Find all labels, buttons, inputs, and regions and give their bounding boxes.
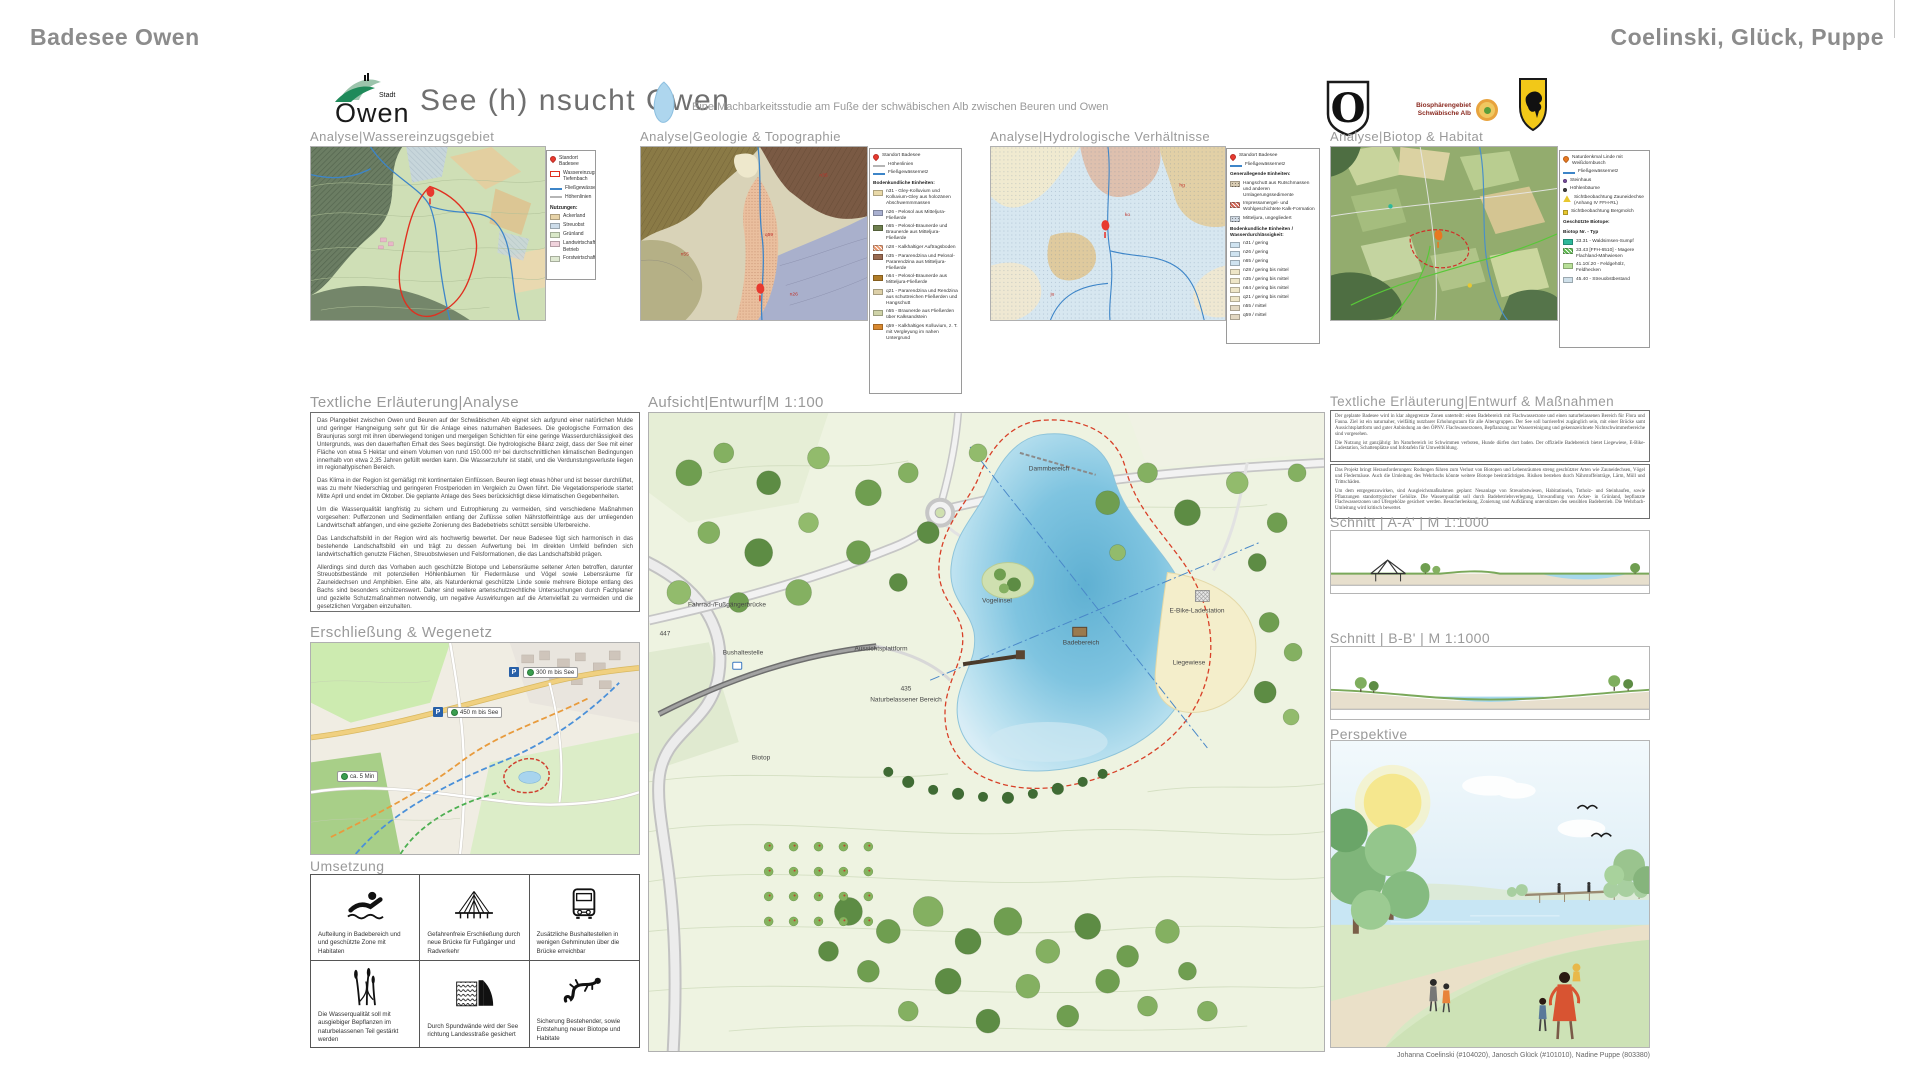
legend-swatch <box>873 254 883 260</box>
legend-swatch <box>1230 260 1240 266</box>
legend-item: Generallegende Einheiten: <box>1230 172 1316 178</box>
legend-item: q59 / mittel <box>1230 313 1316 320</box>
legend-swatch <box>1230 296 1240 302</box>
chip-label: 450 m bis See <box>460 710 498 716</box>
legend-label: Höhenlinien <box>888 162 958 168</box>
authors: Coelinski, Glück, Puppe <box>1610 24 1884 51</box>
subtitle: Eine Machbarkeitsstudie am Fuße der schw… <box>692 101 1292 113</box>
legend-item: 41.10/.20 - Feldgehölz, Feldhecken <box>1563 262 1646 274</box>
plan-label-naturbereich: Naturbelassener Bereich <box>870 697 942 704</box>
heading-textliche-erlaeuterung-analyse: Textliche Erläuterung|Analyse <box>310 394 519 411</box>
plan-label-aussichtsplattform: Aussichtsplattform <box>854 646 907 653</box>
biosphere-logo: Biosphärengebiet Schwäbische Alb <box>1398 96 1498 124</box>
main-title: See (h) nsucht Owen <box>420 84 730 118</box>
legend-label: n65 / gering <box>1243 259 1316 265</box>
legend-label: Sichtbeobachtung Bergmolch <box>1571 209 1646 215</box>
plan-label-dammbereich: Dammbereich <box>1029 466 1069 473</box>
legend-item: Naturdenkmal Linde mit Weißdornbusch <box>1563 155 1646 167</box>
legend-item: Ackerland <box>550 213 592 220</box>
plan-label-badebereich: Badebereich <box>1063 640 1100 647</box>
legend-swatch <box>873 289 883 295</box>
legend-label: Hangschutt aus Rutschmassen und anderen … <box>1243 181 1316 199</box>
legend-label: q59 / mittel <box>1243 313 1316 319</box>
poster: Badesee Owen Coelinski, Glück, Puppe Sta… <box>0 0 1920 1080</box>
map-biotop-habitat <box>1330 146 1558 321</box>
map-hydrologische-verhaeltnisse: kojuhg <box>990 146 1226 321</box>
chip-label: 300 m bis See <box>536 670 574 676</box>
legend-item: Bodenkundliche Einheiten: <box>873 181 958 187</box>
legend-swatch <box>550 232 560 238</box>
legend-swatch <box>873 324 883 330</box>
legend-item: Bodenkundliche Einheiten / Wasserdurchlä… <box>1230 227 1316 239</box>
legend-item: n64 - Pelosol-Braunerde aus Mitteljura-F… <box>873 274 958 286</box>
legend-item: 33.43 [FFH-6510] - Magere Flachland-Mähw… <box>1563 248 1646 260</box>
site-plan: Dammbereich Vogelinsel Badebereich E-Bik… <box>648 412 1325 1052</box>
chip-label: ca. 5 Min <box>350 774 374 780</box>
legend-item: n55 / mittel <box>1230 304 1316 311</box>
legend-label: Bodenkundliche Einheiten: <box>873 181 958 187</box>
legend-label: 33.31 - Waldsimsen-Sumpf <box>1576 239 1646 245</box>
legend-geologie: Standort Badesee Höhenlinien Fließgewäss… <box>869 148 962 394</box>
legend-swatch <box>1230 202 1240 208</box>
legend-label: n31 / gering <box>1243 241 1316 247</box>
entwurf-paragraph: Die Nutzung ist ganzjährig: Im Naturbere… <box>1335 441 1645 453</box>
umsetzung-cell: Die Wasserqualität soll mit ausgiebiger … <box>311 961 420 1047</box>
legend-item: Landwirtschaftlicher Betrieb <box>550 240 592 253</box>
legend-label: Fließgewässernetz <box>888 170 958 176</box>
umsetzung-grid: Aufteilung in Badebereich und und geschü… <box>310 874 640 1048</box>
legend-label: Bodenkundliche Einheiten / Wasserdurchlä… <box>1230 227 1316 239</box>
heading-textliche-erlaeuterung-entwurf: Textliche Erläuterung|Entwurf & Maßnahme… <box>1330 394 1614 409</box>
legend-item: n65 - Pelosol-Braunerde und Braunerde au… <box>873 224 958 242</box>
legend-swatch <box>550 241 560 247</box>
distance-chip: ca. 5 Min <box>337 771 378 782</box>
distance-chip: 300 m bis See <box>523 667 578 678</box>
legend-item: q21 / gering bis mittel <box>1230 295 1316 302</box>
svg-text:ko: ko <box>1125 212 1130 218</box>
legend-swatch <box>550 188 562 190</box>
legend-item: n28 - Kalkhaltiger Auftragsboden <box>873 245 958 252</box>
legend-label: 45.40 - Streuobstbestand <box>1576 277 1646 283</box>
entwurf-paragraph: Das Projekt bringt Herausforderungen: Ro… <box>1335 468 1645 486</box>
analyse-paragraph: Das Plangebiet zwischen Owen und Beuren … <box>317 418 633 473</box>
legend-swatch <box>873 275 883 281</box>
walk-dot-icon <box>527 669 534 676</box>
salamander-icon <box>530 961 639 1014</box>
legend-swatch <box>1230 181 1240 187</box>
legend-label: n65 - Pelosol-Braunerde und Braunerde au… <box>886 224 958 242</box>
legend-swatch <box>550 256 560 262</box>
legend-label: Höhlenbäume <box>1570 186 1646 192</box>
legend-item: n26 / gering <box>1230 250 1316 257</box>
legend-item: Fließgewässer <box>550 185 592 191</box>
umsetzung-caption: Die Wasserqualität soll mit ausgiebiger … <box>311 1007 419 1047</box>
legend-item: Hangschutt aus Rutschmassen und anderen … <box>1230 181 1316 199</box>
legend-label: Grünland <box>563 231 592 237</box>
legend-swatch <box>873 245 883 251</box>
legend-item: Mitteljura, ungegliedert <box>1230 216 1316 223</box>
legend-label: 33.43 [FFH-6510] - Magere Flachland-Mähw… <box>1576 248 1646 260</box>
legend-label: Geschützte Biotope: <box>1563 220 1646 226</box>
legend-item: Steinhaus <box>1563 178 1646 184</box>
legend-label: Standort Badesee <box>882 153 958 159</box>
plan-label-vogelinsel: Vogelinsel <box>982 598 1012 605</box>
legend-swatch <box>1230 165 1242 167</box>
legend-biotop: Naturdenkmal Linde mit Weißdornbusch Fli… <box>1559 150 1650 348</box>
legend-item: 45.40 - Streuobstbestand <box>1563 277 1646 284</box>
reeds-icon <box>311 961 419 1007</box>
legend-item: Höhlenbäume <box>1563 186 1646 192</box>
legend-label: Nutzungen: <box>550 205 592 211</box>
plan-label-bruecke: Fahrrad-/Fußgängerbrücke <box>688 602 766 609</box>
legend-swatch <box>1563 239 1573 245</box>
legend-swatch <box>550 171 560 177</box>
legend-swatch <box>873 310 883 316</box>
legend-label: n35 / gering bis mittel <box>1243 277 1316 283</box>
svg-text:n35: n35 <box>819 173 828 179</box>
legend-label: Generallegende Einheiten: <box>1230 172 1316 178</box>
legend-swatch <box>1563 179 1567 183</box>
svg-text:hg: hg <box>1179 183 1185 189</box>
legend-item: n64 / gering bis mittel <box>1230 286 1316 293</box>
legend-label: n55 / mittel <box>1243 304 1316 310</box>
umsetzung-caption: Zusätzliche Bushaltestellen in wenigen G… <box>530 927 639 960</box>
legend-swatch <box>1230 269 1240 275</box>
legend-item: n31 / gering <box>1230 241 1316 248</box>
legend-label: Forstwirtschaft <box>563 255 596 261</box>
svg-text:n26: n26 <box>790 291 799 297</box>
legend-swatch <box>1230 242 1240 248</box>
legend-label: n28 - Kalkhaltiger Auftragsboden <box>886 245 958 251</box>
legend-swatch <box>1230 287 1240 293</box>
schnitt-aa-drawing <box>1330 530 1650 594</box>
biosphere-line2: Schwäbische Alb <box>1398 110 1471 118</box>
legend-swatch <box>1563 263 1573 269</box>
perspektive-drawing <box>1330 740 1650 1048</box>
legend-label: Ackerland <box>563 213 592 219</box>
legend-label: Fließgewässernetz <box>1245 162 1316 168</box>
umsetzung-cell: Durch Spundwände wird der See richtung L… <box>420 961 529 1047</box>
heading-analyse-hydrologie: Analyse|Hydrologische Verhältnisse <box>990 129 1210 144</box>
credits: Johanna Coelinski (#104020), Janosch Glü… <box>1330 1052 1650 1059</box>
map-wassereinzugsgebiet <box>310 146 546 321</box>
analyse-paragraph: Das Klima in der Region ist gemäßigt mit… <box>317 478 633 502</box>
legend-item: Grünland <box>550 231 592 238</box>
heading-analyse-biotop: Analyse|Biotop & Habitat <box>1330 129 1483 144</box>
beuren-crest-shield <box>1518 76 1548 132</box>
analyse-paragraph: Das Landschaftsbild in der Region wird a… <box>317 536 633 560</box>
entwurf-text-box-2: Das Projekt bringt Herausforderungen: Ro… <box>1330 464 1650 519</box>
umsetzung-cell: Aufteilung in Badebereich und und geschü… <box>311 875 420 961</box>
plan-label-bushaltestelle: Bushaltestelle <box>723 650 763 657</box>
legend-swatch <box>1562 154 1570 162</box>
legend-swatch <box>1563 210 1568 215</box>
legend-item: n26 - Pelosol aus Mitteljura-Fließerde <box>873 210 958 222</box>
poster-title: Badesee Owen <box>30 24 200 51</box>
legend-item: Forstwirtschaft <box>550 255 592 262</box>
owen-city-logo: Stadt Owen <box>333 72 403 134</box>
legend-label: Steinhaus <box>1570 178 1646 184</box>
legend-item: Standort Badesee <box>1230 153 1316 160</box>
legend-label: n26 / gering <box>1243 250 1316 256</box>
schnitt-bb-drawing <box>1330 646 1650 720</box>
legend-swatch <box>550 214 560 220</box>
legend-label: n55 - Braunerde aus Fließerden über Kalk… <box>886 309 958 321</box>
parking-marker: P <box>509 667 519 677</box>
legend-swatch <box>1230 251 1240 257</box>
plan-label-liegewiese: Liegewiese <box>1173 660 1206 667</box>
legend-swatch <box>873 173 885 175</box>
swimmer-icon <box>311 875 419 927</box>
legend-item: Fließgewässernetz <box>1563 169 1646 175</box>
legend-item: Sichtbeobachtung Zauneidechse (Anhang IV… <box>1563 195 1646 207</box>
legend-item: Sichtbeobachtung Bergmolch <box>1563 209 1646 215</box>
legend-item: Standort Badesee <box>873 153 958 160</box>
legend-label: Höhenlinien <box>565 194 592 200</box>
legend-swatch <box>873 190 883 196</box>
legend-item: n28 / gering bis mittel <box>1230 268 1316 275</box>
bridge-icon <box>420 875 528 927</box>
heading-analyse-wassereinzugsgebiet: Analyse|Wassereinzugsgebiet <box>310 129 494 144</box>
legend-swatch <box>1230 278 1240 284</box>
svg-text:n55: n55 <box>681 252 690 258</box>
distance-chip: 450 m bis See <box>447 707 502 718</box>
legend-swatch <box>1563 188 1567 192</box>
legend-wassereinzugsgebiet: Standort Badesee Wassereinzugsgebiet Tie… <box>546 150 596 280</box>
heading-schnitt-bb: Schnitt | B-B' | M 1:1000 <box>1330 630 1490 646</box>
legend-swatch <box>873 165 885 167</box>
legend-label: Fließgewässer <box>565 185 596 191</box>
legend-item: Biotop Nr. - Typ <box>1563 230 1646 236</box>
analyse-paragraph: Um die Wasserqualität langfristig zu sic… <box>317 507 633 531</box>
plan-label-hoehe-435: 435 <box>901 686 912 693</box>
parking-marker: P <box>433 707 443 717</box>
legend-swatch <box>1230 314 1240 320</box>
umsetzung-cell: Zusätzliche Bushaltestellen in wenigen G… <box>530 875 639 961</box>
legend-item: Standort Badesee <box>550 155 592 168</box>
crest-letter: O <box>1331 85 1366 132</box>
legend-hydrologie: Standort Badesee Fließgewässernetz Gener… <box>1226 148 1320 344</box>
legend-label: n64 / gering bis mittel <box>1243 286 1316 292</box>
page-edge-line <box>1894 0 1895 38</box>
legend-item: n35 / gering bis mittel <box>1230 277 1316 284</box>
umsetzung-caption: Gefahrenfreie Erschließung durch neue Br… <box>420 927 528 960</box>
legend-swatch <box>1563 195 1571 202</box>
legend-label: Streuobst <box>563 222 592 228</box>
heading-umsetzung: Umsetzung <box>310 858 384 874</box>
legend-item: Wassereinzugsgebiet Tiefenbach <box>550 170 592 183</box>
legend-swatch <box>549 154 557 162</box>
svg-text:ju: ju <box>1049 291 1054 297</box>
legend-swatch <box>550 196 562 198</box>
legend-swatch <box>1229 152 1237 160</box>
legend-item: Höhenlinien <box>873 162 958 168</box>
legend-label: Naturdenkmal Linde mit Weißdornbusch <box>1572 155 1646 167</box>
legend-item: q59 - Kalkhaltiges Kolluvium, z. T. mit … <box>873 324 958 342</box>
legend-label: n35 - Pararendzina und Pelosol-Pararendz… <box>886 254 958 272</box>
legend-item: n31 - Gley-Kolluvium und Kolluvium-Gley … <box>873 189 958 207</box>
legend-swatch <box>1563 277 1573 283</box>
biosphere-circle-icon <box>1476 99 1498 121</box>
legend-item: Streuobst <box>550 222 592 229</box>
plan-label-biotop: Biotop <box>752 755 770 762</box>
umsetzung-caption: Aufteilung in Badebereich und und geschü… <box>311 927 419 960</box>
heading-schnitt-aa: Schnitt | A-A' | M 1:1000 <box>1330 514 1489 530</box>
lake-shape-icon <box>650 80 678 126</box>
map-erschliessung: P 300 m bis See P 450 m bis See ca. 5 Mi… <box>310 642 640 855</box>
legend-item: n35 - Pararendzina und Pelosol-Pararendz… <box>873 254 958 272</box>
map-geologie-topographie: n55n26q59n35 <box>640 146 868 321</box>
logo-owen-label: Owen <box>335 98 410 129</box>
legend-label: Standort Badesee <box>1239 153 1316 159</box>
legend-label: q21 / gering bis mittel <box>1243 295 1316 301</box>
heading-erschliessung-wegenetz: Erschließung & Wegenetz <box>310 624 492 641</box>
legend-item: Impressamergel- und Wohlgeschichtete Kal… <box>1230 201 1316 213</box>
legend-swatch <box>872 152 880 160</box>
legend-label: q21 - Pararendzina und Rendzina aus schu… <box>886 289 958 307</box>
legend-label: q59 - Kalkhaltiges Kolluvium, z. T. mit … <box>886 324 958 342</box>
legend-label: n28 / gering bis mittel <box>1243 268 1316 274</box>
umsetzung-caption: Durch Spundwände wird der See richtung L… <box>420 1019 528 1044</box>
heading-aufsicht-entwurf: Aufsicht|Entwurf|M 1:100 <box>648 394 824 411</box>
legend-item: Fließgewässernetz <box>1230 162 1316 168</box>
legend-item: Geschützte Biotope: <box>1563 220 1646 226</box>
legend-item: Höhenlinien <box>550 194 592 200</box>
legend-label: Standort Badesee <box>559 155 592 168</box>
umsetzung-caption: Sicherung Bestehender, sowie Entstehung … <box>530 1014 639 1047</box>
legend-label: Sichtbeobachtung Zauneidechse (Anhang IV… <box>1574 195 1646 207</box>
legend-swatch <box>550 223 560 229</box>
legend-label: Landwirtschaftlicher Betrieb <box>563 240 596 253</box>
legend-swatch <box>1230 216 1240 222</box>
biosphere-line1: Biosphärengebiet <box>1398 102 1471 110</box>
plan-label-ebike: E-Bike-Ladestation <box>1170 608 1225 615</box>
dam-icon <box>420 961 528 1019</box>
svg-text:q59: q59 <box>765 232 774 238</box>
entwurf-paragraph: Der geplante Badesee wird in klar abgegr… <box>1335 414 1645 438</box>
legend-label: Fließgewässernetz <box>1578 169 1646 175</box>
legend-item: q21 - Pararendzina und Rendzina aus schu… <box>873 289 958 307</box>
plan-label-strasse-447: 447 <box>660 631 671 638</box>
legend-swatch <box>873 225 883 231</box>
walk-dot-icon <box>341 773 348 780</box>
entwurf-text-box-1: Der geplante Badesee wird in klar abgegr… <box>1330 410 1650 462</box>
bus-icon <box>530 875 639 927</box>
legend-label: Mitteljura, ungegliedert <box>1243 216 1316 222</box>
legend-swatch <box>1563 172 1575 174</box>
legend-item: Fließgewässernetz <box>873 170 958 176</box>
analyse-text-box: Das Plangebiet zwischen Owen und Beuren … <box>310 412 640 612</box>
legend-item: n55 - Braunerde aus Fließerden über Kalk… <box>873 309 958 321</box>
legend-swatch <box>1230 305 1240 311</box>
entwurf-paragraph: Um dem entgegenzuwirken, sind Ausgleichs… <box>1335 489 1645 513</box>
legend-label: n26 - Pelosol aus Mitteljura-Fließerde <box>886 210 958 222</box>
umsetzung-cell: Gefahrenfreie Erschließung durch neue Br… <box>420 875 529 961</box>
umsetzung-cell: Sicherung Bestehender, sowie Entstehung … <box>530 961 639 1047</box>
legend-item: n65 / gering <box>1230 259 1316 266</box>
legend-label: n31 - Gley-Kolluvium und Kolluvium-Gley … <box>886 189 958 207</box>
legend-label: Impressamergel- und Wohlgeschichtete Kal… <box>1243 201 1316 213</box>
legend-label: 41.10/.20 - Feldgehölz, Feldhecken <box>1576 262 1646 274</box>
legend-swatch <box>1563 248 1573 254</box>
legend-label: Biotop Nr. - Typ <box>1563 230 1646 236</box>
heading-analyse-geologie: Analyse|Geologie & Topographie <box>640 129 841 144</box>
legend-label: n64 - Pelosol-Braunerde aus Mitteljura-F… <box>886 274 958 286</box>
legend-item: Nutzungen: <box>550 205 592 211</box>
walk-dot-icon <box>451 709 458 716</box>
legend-item: 33.31 - Waldsimsen-Sumpf <box>1563 239 1646 246</box>
analyse-paragraph: Allerdings sind durch das Vorhaben auch … <box>317 565 633 612</box>
legend-label: Wassereinzugsgebiet Tiefenbach <box>563 170 596 183</box>
legend-swatch <box>873 210 883 216</box>
